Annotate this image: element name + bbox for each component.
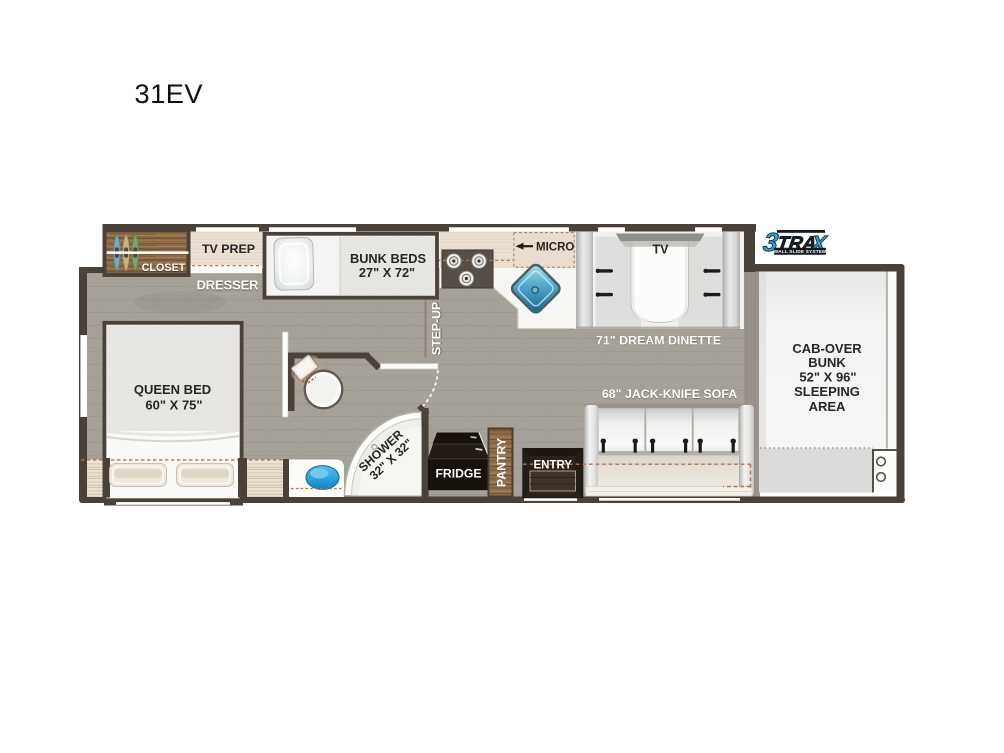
svg-text:31EV: 31EV	[135, 78, 204, 109]
svg-text:CAB-OVER: CAB-OVER	[792, 341, 862, 356]
svg-text:CLOSET: CLOSET	[142, 262, 186, 274]
svg-text:MICRO: MICRO	[536, 242, 574, 254]
svg-text:AREA: AREA	[809, 399, 846, 414]
svg-text:BUNK: BUNK	[808, 355, 846, 370]
svg-text:STEP-UP: STEP-UP	[430, 302, 444, 355]
svg-text:60" X 75": 60" X 75"	[145, 397, 202, 412]
svg-text:TV PREP: TV PREP	[202, 242, 255, 256]
svg-text:BUNK BEDS: BUNK BEDS	[350, 251, 427, 266]
svg-text:71" DREAM DINETTE: 71" DREAM DINETTE	[596, 333, 721, 347]
svg-text:SLEEPING: SLEEPING	[794, 384, 860, 399]
svg-text:FRIDGE: FRIDGE	[435, 466, 481, 480]
svg-text:WALL SLIDE SYSTEM: WALL SLIDE SYSTEM	[774, 249, 827, 255]
svg-text:52" X 96": 52" X 96"	[799, 370, 856, 385]
svg-text:68" JACK-KNIFE SOFA: 68" JACK-KNIFE SOFA	[602, 387, 737, 401]
svg-text:TV: TV	[653, 243, 670, 257]
svg-text:27" X 72": 27" X 72"	[359, 265, 415, 280]
svg-text:ENTRY: ENTRY	[534, 460, 573, 472]
svg-text:PANTRY: PANTRY	[495, 438, 509, 487]
svg-text:QUEEN BED: QUEEN BED	[134, 382, 211, 397]
svg-text:DRESSER: DRESSER	[197, 278, 259, 293]
